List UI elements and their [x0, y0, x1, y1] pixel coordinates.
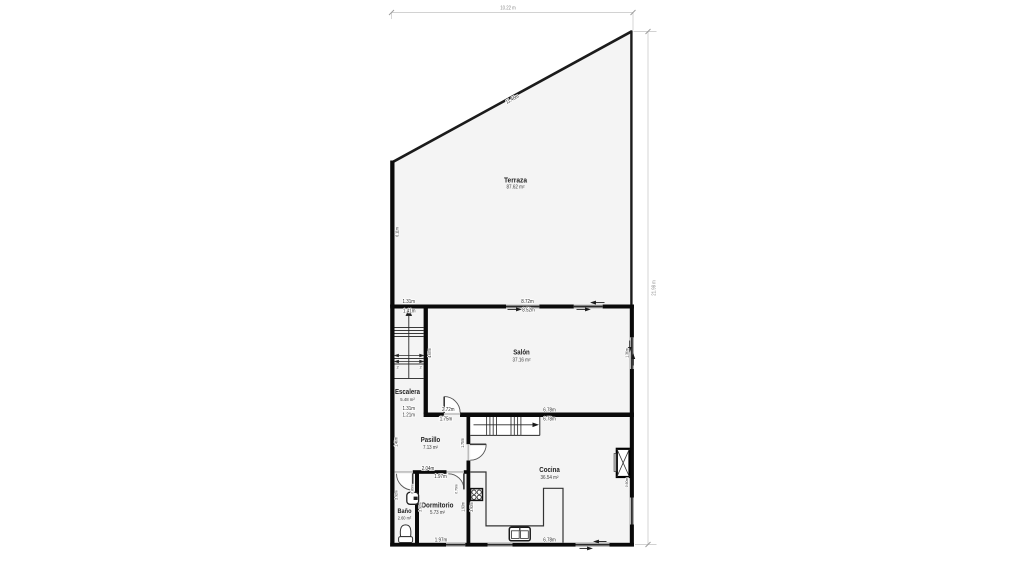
svg-text:Cocina: Cocina	[539, 465, 560, 474]
svg-text:Salón: Salón	[513, 348, 530, 357]
svg-text:0.60m: 0.60m	[624, 477, 629, 487]
svg-text:Pasillo: Pasillo	[421, 435, 441, 444]
svg-text:2.04m: 2.04m	[422, 466, 435, 472]
svg-text:2.72m: 2.72m	[442, 407, 455, 413]
svg-text:Baño: Baño	[398, 508, 412, 515]
svg-text:8.72m: 8.72m	[521, 299, 534, 305]
svg-text:4.60m: 4.60m	[427, 348, 432, 358]
svg-text:37.16 m²: 37.16 m²	[513, 358, 531, 364]
svg-text:1.31m: 1.31m	[403, 406, 416, 412]
svg-text:Terraza: Terraza	[504, 176, 528, 185]
svg-text:2.60 m²: 2.60 m²	[398, 515, 412, 520]
svg-text:2.92m: 2.92m	[418, 502, 423, 512]
svg-text:21.98 m: 21.98 m	[652, 280, 658, 296]
svg-text:1.97m: 1.97m	[435, 538, 448, 544]
svg-text:8.52m: 8.52m	[522, 307, 535, 313]
svg-text:5.48 m²: 5.48 m²	[400, 397, 415, 403]
svg-text:5.73 m²: 5.73 m²	[430, 510, 445, 516]
svg-text:36.54 m²: 36.54 m²	[541, 475, 559, 481]
svg-text:0.89m: 0.89m	[409, 484, 414, 494]
svg-text:1.46m: 1.46m	[394, 437, 399, 447]
svg-text:1.93m: 1.93m	[461, 502, 466, 512]
svg-text:2.92m: 2.92m	[393, 490, 398, 500]
svg-text:87.62 m²: 87.62 m²	[507, 184, 525, 190]
svg-text:7.13 m²: 7.13 m²	[423, 445, 438, 451]
svg-text:1.75m: 1.75m	[440, 416, 453, 422]
svg-text:1.97m: 1.97m	[434, 474, 447, 480]
svg-text:1.21m: 1.21m	[403, 413, 416, 419]
svg-text:3.93m: 3.93m	[469, 502, 474, 512]
svg-text:Escalera: Escalera	[395, 387, 421, 396]
svg-text:0.79m: 0.79m	[453, 484, 458, 494]
svg-text:6.78m: 6.78m	[543, 416, 556, 422]
svg-text:1.41m: 1.41m	[403, 308, 416, 314]
svg-text:1.36m: 1.36m	[624, 348, 629, 358]
svg-text:6.78m: 6.78m	[543, 538, 556, 544]
svg-text:6.78m: 6.78m	[543, 407, 556, 413]
svg-text:1.31m: 1.31m	[403, 299, 416, 305]
svg-text:Dormitorio: Dormitorio	[422, 501, 454, 510]
svg-text:1.75m: 1.75m	[460, 438, 465, 448]
svg-text:10.22 m: 10.22 m	[500, 6, 516, 12]
svg-text:6.11m: 6.11m	[394, 227, 399, 237]
